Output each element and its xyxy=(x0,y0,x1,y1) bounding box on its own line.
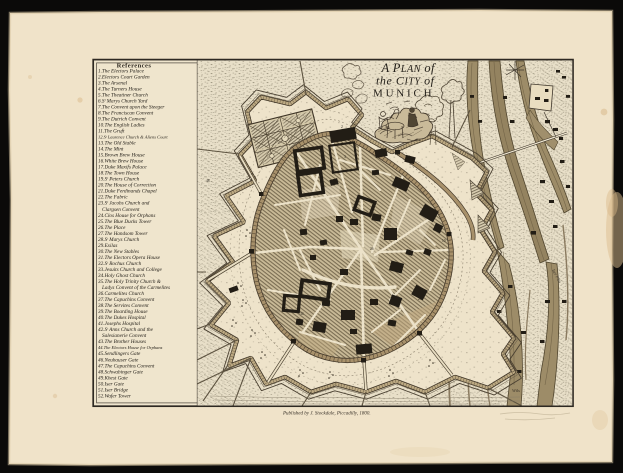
svg-text:46.Neuhauser Gate: 46.Neuhauser Gate xyxy=(98,356,139,363)
svg-text:11.The Gruft: 11.The Gruft xyxy=(98,128,125,135)
svg-text:49.Khest Gate: 49.Khest Gate xyxy=(98,374,128,381)
svg-text:42.Sᵗ Anns Church and the: 42.Sᵗ Anns Church and the xyxy=(98,326,154,333)
svg-text:13.The Old Stable: 13.The Old Stable xyxy=(98,141,136,147)
svg-text:14.The Mint: 14.The Mint xyxy=(98,146,124,153)
svg-text:17.Duke Maxifs Palace: 17.Duke Maxifs Palace xyxy=(98,164,147,171)
svg-text:41.Josephs Hospital: 41.Josephs Hospital xyxy=(98,320,141,327)
svg-text:8.The Franciscan Convent: 8.The Franciscan Convent xyxy=(98,110,154,116)
svg-text:23.Sᵗ Jacobs Church and: 23.Sᵗ Jacobs Church and xyxy=(98,201,150,207)
svg-text:45.Sendlingers Gate: 45.Sendlingers Gate xyxy=(98,350,141,357)
svg-text:24.Clos House for Orphans: 24.Clos House for Orphans xyxy=(98,212,155,219)
svg-text:50.Iser Gate: 50.Iser Gate xyxy=(98,381,125,387)
svg-text:47: 47 xyxy=(233,287,237,291)
svg-text:3.The Arsenal: 3.The Arsenal xyxy=(98,80,128,86)
svg-text:34: 34 xyxy=(300,312,304,316)
svg-text:MUNICH: MUNICH xyxy=(373,88,435,100)
svg-text:26: 26 xyxy=(370,247,374,251)
svg-text:the CITY of: the CITY of xyxy=(376,74,436,88)
svg-text:Ladys Convent of the Carmelite: Ladys Convent of the Carmelites xyxy=(101,284,170,291)
svg-text:Wils: Wils xyxy=(512,388,520,393)
svg-text:32.Sᵗ Rochus Church: 32.Sᵗ Rochus Church xyxy=(98,261,142,267)
svg-text:1: 1 xyxy=(322,157,324,161)
svg-text:48.Schwabinger Gate: 48.Schwabinger Gate xyxy=(98,368,144,375)
svg-text:44.The Electors House for Orph: 44.The Electors House for Orphans xyxy=(98,345,163,350)
svg-text:18.The Town House: 18.The Town House xyxy=(98,171,140,177)
svg-text:40.The Dukes Hospital: 40.The Dukes Hospital xyxy=(98,314,146,321)
svg-text:43.The Brother Houses: 43.The Brother Houses xyxy=(98,338,146,345)
svg-text:27.The Handsom Tower: 27.The Handsom Tower xyxy=(98,231,149,237)
svg-text:4.The Turners House: 4.The Turners House xyxy=(98,85,142,92)
svg-text:3: 3 xyxy=(344,155,346,159)
svg-text:2: 2 xyxy=(341,125,343,129)
svg-text:36.Carmelites Church: 36.Carmelites Church xyxy=(98,291,144,297)
svg-text:34.Holy Ghost Church: 34.Holy Ghost Church xyxy=(98,272,145,279)
svg-text:47.The Capuchins Convent: 47.The Capuchins Convent xyxy=(98,362,155,369)
svg-text:20.The House of Correction: 20.The House of Correction xyxy=(98,182,156,189)
svg-text:12.Sᵗ Laurence Church & Aliens: 12.Sᵗ Laurence Church & Aliens Court xyxy=(98,135,168,140)
svg-text:10: 10 xyxy=(442,239,446,243)
svg-text:24: 24 xyxy=(418,297,422,301)
svg-text:52.Wafer Tower: 52.Wafer Tower xyxy=(98,392,132,399)
svg-text:Published by J. Stockdale, Pic: Published by J. Stockdale, Piccadilly, 1… xyxy=(282,412,371,417)
svg-text:48: 48 xyxy=(206,179,210,183)
